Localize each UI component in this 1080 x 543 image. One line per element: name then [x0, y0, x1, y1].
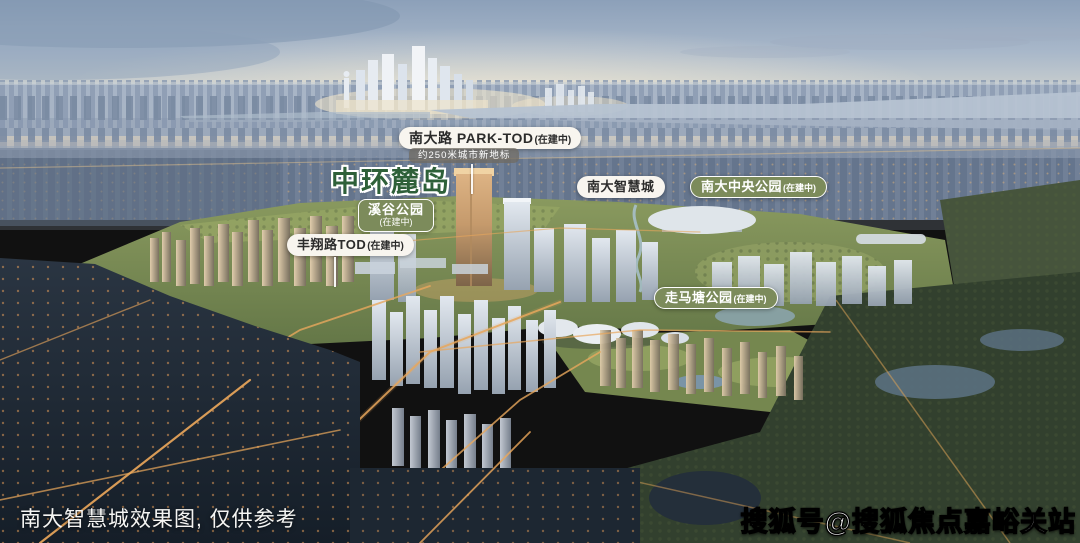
render-disclaimer-caption: 南大智慧城效果图, 仅供参考: [20, 503, 298, 533]
label-zoumatang-park: 走马塘公园 (在建中): [654, 287, 778, 309]
label-title: 南大路 PARK-TOD: [409, 127, 533, 149]
label-status: (在建中): [534, 130, 571, 152]
label-status: (在建中): [367, 236, 404, 258]
label-title: 南大中央公园: [701, 177, 782, 197]
label-nanda-central-park: 南大中央公园 (在建中): [690, 176, 827, 198]
label-title: 南大智慧城: [587, 176, 655, 198]
label-status: (在建中): [734, 289, 767, 309]
sohu-watermark: 搜狐号@搜狐焦点嘉峪关站: [741, 500, 1076, 539]
label-title: 溪谷公园: [368, 202, 424, 217]
label-status: (在建中): [783, 178, 816, 198]
label-status: (在建中): [368, 217, 424, 228]
label-nandalu-park-tod: 南大路 PARK-TOD (在建中): [399, 127, 581, 149]
label-zhonghuan-ludao: 中环麓岛: [331, 160, 451, 200]
label-xigu-park: 溪谷公园 (在建中): [358, 199, 434, 232]
city-render-image: 南大路 PARK-TOD (在建中) 约250米城市新地标 中环麓岛 溪谷公园 …: [0, 0, 1080, 543]
label-nanda-smart-city: 南大智慧城: [577, 176, 665, 198]
leader-line-park-tod: [471, 164, 473, 194]
leader-line-fengxiang-tod: [334, 257, 336, 287]
label-title: 丰翔路TOD: [297, 234, 366, 256]
label-fengxiang-tod: 丰翔路TOD (在建中): [287, 234, 414, 256]
label-title: 走马塘公园: [665, 288, 733, 308]
cityscape-illustration: [0, 0, 1080, 543]
